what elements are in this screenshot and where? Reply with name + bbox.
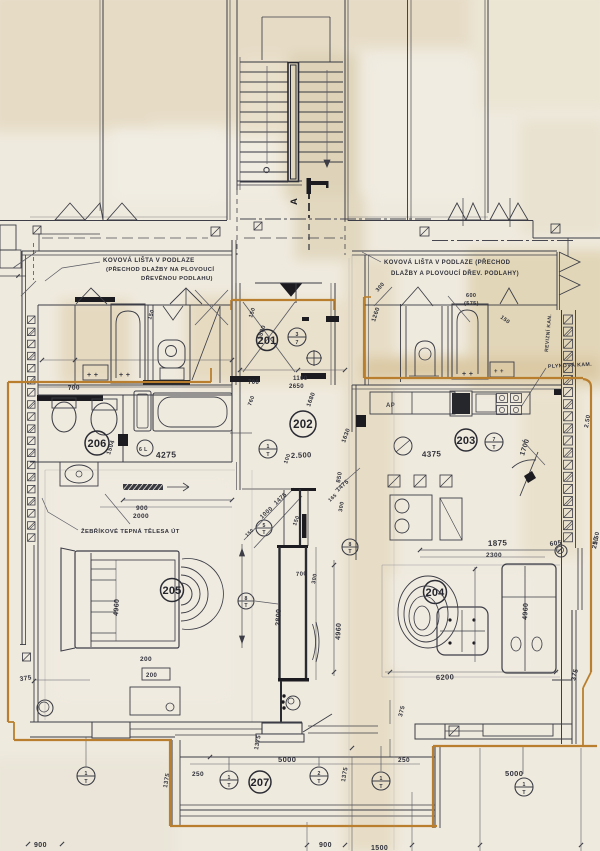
svg-text:2.500: 2.500 [291,450,312,460]
svg-text:202: 202 [293,419,313,431]
svg-text:+ +: + + [119,372,130,379]
svg-text:8: 8 [245,596,248,602]
svg-text:5000: 5000 [278,755,296,764]
svg-text:1875: 1875 [488,538,508,548]
svg-text:(575): (575) [464,301,479,307]
svg-text:900: 900 [319,842,332,849]
svg-text:+ +: + + [87,372,98,379]
svg-text:900: 900 [34,842,47,849]
svg-text:7: 7 [493,437,496,443]
svg-text:6200: 6200 [436,672,455,682]
svg-text:700: 700 [248,380,259,386]
svg-text:1: 1 [228,775,231,781]
svg-text:600: 600 [466,293,476,299]
svg-text:5000: 5000 [505,769,523,778]
svg-text:KOVOVÁ LIŠTA V PODLAZE (PŘ: KOVOVÁ LIŠTA V PODLAZE (PŘECHOD [384,258,511,266]
svg-text:A: A [289,198,300,205]
svg-text:1500: 1500 [371,845,388,851]
svg-text:DLAŽBY A PLOVOUCÍ DŘEV. PO: DLAŽBY A PLOVOUCÍ DŘEV. PODLAHY) [391,269,519,277]
svg-text:DŘEVĚNOU PODLAHU): DŘEVĚNOU PODLAHU) [141,274,213,282]
svg-text:206: 206 [88,438,107,450]
svg-text:5: 5 [263,523,266,529]
svg-text:2: 2 [318,771,321,777]
svg-text:1: 1 [267,444,270,450]
svg-text:4960: 4960 [522,603,530,621]
svg-text:1: 1 [380,776,383,782]
svg-text:250: 250 [398,757,410,764]
svg-text:(PŘECHOD DLAŽBY NA PLOVOUCÍ: (PŘECHOD DLAŽBY NA PLOVOUCÍ [106,265,214,273]
svg-text:2300: 2300 [486,552,502,559]
svg-text:+ +: + + [494,369,504,375]
svg-text:1: 1 [523,782,526,788]
svg-text:2.50: 2.50 [593,531,600,545]
svg-text:203: 203 [457,435,476,447]
svg-text:4960: 4960 [113,599,121,617]
svg-text:KOVOVÁ LIŠTA V PODLAZE: KOVOVÁ LIŠTA V PODLAZE [103,256,195,264]
svg-text:1100: 1100 [293,376,308,382]
svg-text:3: 3 [296,332,299,338]
svg-text:ŽEBŘÍKOVÉ TEPNÁ TĚLESA ÚT: ŽEBŘÍKOVÉ TEPNÁ TĚLESA ÚT [81,527,180,535]
svg-text:4960: 4960 [335,623,343,641]
svg-text:4375: 4375 [422,449,442,459]
svg-text:4275: 4275 [156,449,177,460]
svg-text:7: 7 [296,340,299,346]
svg-text:200: 200 [140,656,152,663]
svg-text:6 L: 6 L [139,447,148,453]
svg-text:250: 250 [192,771,204,778]
svg-text:900: 900 [136,505,148,512]
svg-text:207: 207 [251,777,270,789]
svg-text:700: 700 [68,384,80,392]
svg-text:205: 205 [163,585,182,597]
svg-text:1: 1 [85,771,88,777]
svg-text:200: 200 [146,673,157,679]
svg-text:2000: 2000 [133,513,149,520]
svg-text:2650: 2650 [289,384,304,390]
